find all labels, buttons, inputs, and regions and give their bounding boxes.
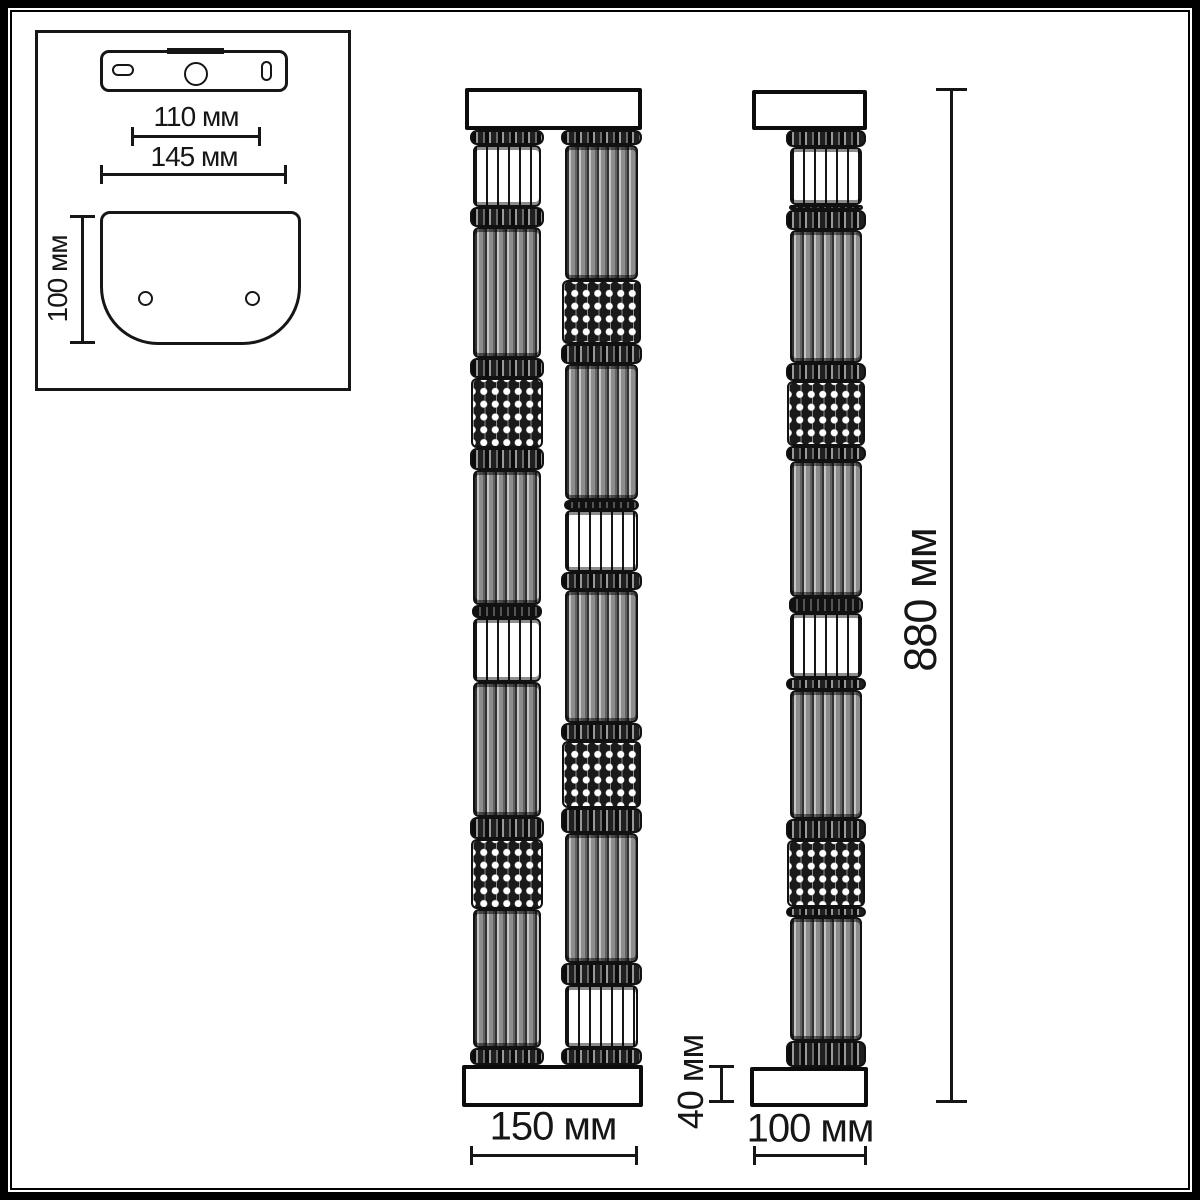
dim-total-height-line (950, 88, 953, 1103)
column-segment-gray (565, 590, 638, 722)
column-segment-dots (471, 378, 544, 448)
column-segment-gray (473, 909, 541, 1047)
front-bottom-cap (462, 1065, 643, 1107)
column-segment-joint (561, 130, 641, 145)
column-segment-gray (565, 364, 638, 500)
column-segment-thin (472, 605, 543, 617)
plate-hole-right (245, 291, 260, 306)
front-top-cap (465, 88, 642, 130)
column-segment-ring (786, 363, 865, 381)
dim-bracket-width-label: 145 мм (151, 141, 238, 173)
dim-total-height-label: 880 мм (895, 528, 947, 671)
column-segment-ring (786, 907, 865, 917)
column-segment-thin (564, 500, 640, 510)
column-segment-gray (473, 682, 541, 817)
bracket-slot-right (261, 61, 272, 81)
column-segment-thin (789, 597, 864, 612)
column-segment-ring (470, 358, 545, 378)
column-segment-gray (473, 470, 541, 605)
column-segment-joint (470, 1048, 545, 1065)
column-segment-dots (471, 839, 544, 909)
dim-front-width-label: 150 мм (490, 1105, 617, 1150)
column-segment-gray (565, 833, 638, 963)
column-segment-ring (786, 678, 865, 690)
dim-cap-height-label: 40 мм (670, 1035, 712, 1130)
column-segment-white (790, 147, 862, 206)
dim-front-width-line (470, 1154, 638, 1157)
column-segment-ring (470, 207, 545, 227)
column-segment-dots (562, 280, 640, 344)
column-segment-ring (561, 572, 641, 590)
column-segment-joint (786, 130, 865, 147)
column-segment-joint (561, 1048, 641, 1065)
column-segment-ring (561, 963, 641, 985)
column-segment-white (473, 618, 541, 682)
front-left-column (473, 130, 541, 1065)
column-segment-gray (790, 690, 862, 819)
column-segment-joint (470, 130, 545, 145)
plate-hole-left (138, 291, 153, 306)
bracket-slot-left (112, 64, 134, 76)
column-segment-white (473, 145, 541, 207)
column-segment-ring (561, 723, 641, 741)
column-segment-white (565, 985, 638, 1048)
column-segment-ring (786, 819, 865, 840)
column-segment-dots (787, 840, 864, 907)
dim-bracket-width-line (100, 173, 287, 176)
column-segment-ring (561, 344, 641, 364)
dim-hole-spacing-label: 110 мм (154, 101, 239, 133)
column-segment-gray (790, 917, 862, 1041)
column-segment-dots (562, 741, 640, 808)
column-segment-dots (787, 381, 864, 446)
bracket-notch (167, 48, 224, 54)
mount-plate-side-view (100, 211, 301, 345)
side-column (790, 130, 862, 1067)
column-segment-ring (786, 1041, 865, 1067)
dimension-drawing: 110 мм 145 мм 100 мм 150 мм 40 мм 100 мм… (0, 0, 1200, 1200)
side-bottom-cap (750, 1067, 868, 1107)
column-segment-gray (790, 230, 862, 363)
dim-plate-height-line (81, 215, 84, 344)
column-segment-ring (470, 817, 545, 839)
column-segment-white (790, 613, 862, 678)
side-top-cap (752, 90, 867, 130)
column-segment-gray (565, 145, 638, 280)
column-segment-ring (561, 808, 641, 833)
dim-side-depth-line (753, 1154, 867, 1157)
front-right-column (565, 130, 638, 1065)
bracket-center-hole (184, 62, 208, 86)
column-segment-gray (790, 461, 862, 597)
mount-detail-inset: 110 мм 145 мм 100 мм (35, 30, 351, 391)
column-segment-ring (786, 210, 865, 230)
dim-cap-height-line (720, 1065, 723, 1103)
column-segment-gray (473, 227, 541, 357)
dim-hole-spacing-line (131, 135, 261, 138)
dim-side-depth-label: 100 мм (747, 1107, 874, 1152)
column-segment-ring (786, 446, 865, 461)
column-segment-ring (470, 448, 545, 470)
column-segment-white (565, 510, 638, 572)
dim-plate-height-label: 100 мм (42, 236, 74, 323)
